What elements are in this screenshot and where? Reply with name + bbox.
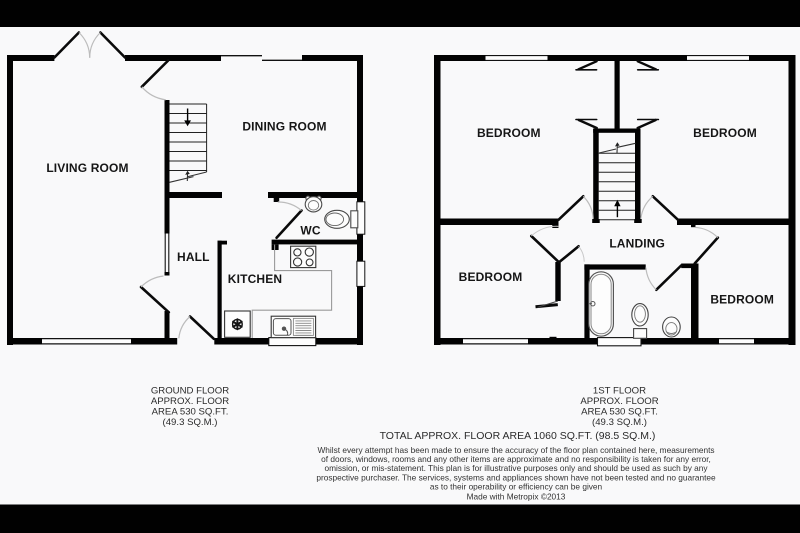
svg-text:APPROX. FLOOR: APPROX. FLOOR [151,396,229,407]
svg-text:GROUND FLOOR: GROUND FLOOR [151,386,229,397]
svg-text:1ST FLOOR: 1ST FLOOR [593,386,646,397]
svg-text:HALL: HALL [177,250,210,264]
svg-text:AREA 530 SQ.FT.: AREA 530 SQ.FT. [581,407,658,418]
svg-text:as to their operability or eff: as to their operability or efficiency ca… [430,482,603,492]
svg-text:WC: WC [300,224,320,238]
svg-text:LANDING: LANDING [609,236,665,250]
svg-text:BEDROOM: BEDROOM [693,126,757,140]
svg-text:BEDROOM: BEDROOM [477,126,541,140]
svg-text:KITCHEN: KITCHEN [228,272,282,286]
svg-text:BEDROOM: BEDROOM [459,270,523,284]
svg-text:(49.3 SQ.M.): (49.3 SQ.M.) [163,417,218,428]
svg-text:Made with Metropix ©2013: Made with Metropix ©2013 [467,491,566,501]
svg-text:APPROX. FLOOR: APPROX. FLOOR [580,396,658,407]
svg-text:LIVING ROOM: LIVING ROOM [46,161,128,175]
svg-text:AREA 530 SQ.FT.: AREA 530 SQ.FT. [152,407,229,418]
svg-text:DINING ROOM: DINING ROOM [242,120,326,134]
svg-text:BEDROOM: BEDROOM [710,293,774,307]
svg-text:(49.3 SQ.M.): (49.3 SQ.M.) [592,417,647,428]
svg-text:TOTAL APPROX. FLOOR AREA 1060: TOTAL APPROX. FLOOR AREA 1060 SQ.FT. (98… [380,430,656,442]
